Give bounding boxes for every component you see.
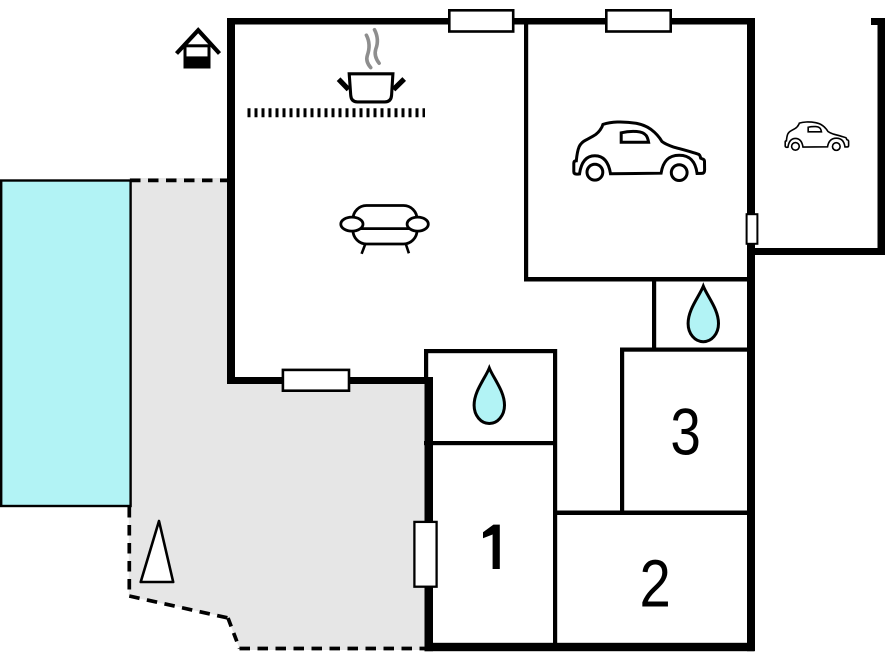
svg-text:2: 2 [640,547,671,622]
svg-text:3: 3 [670,395,700,469]
